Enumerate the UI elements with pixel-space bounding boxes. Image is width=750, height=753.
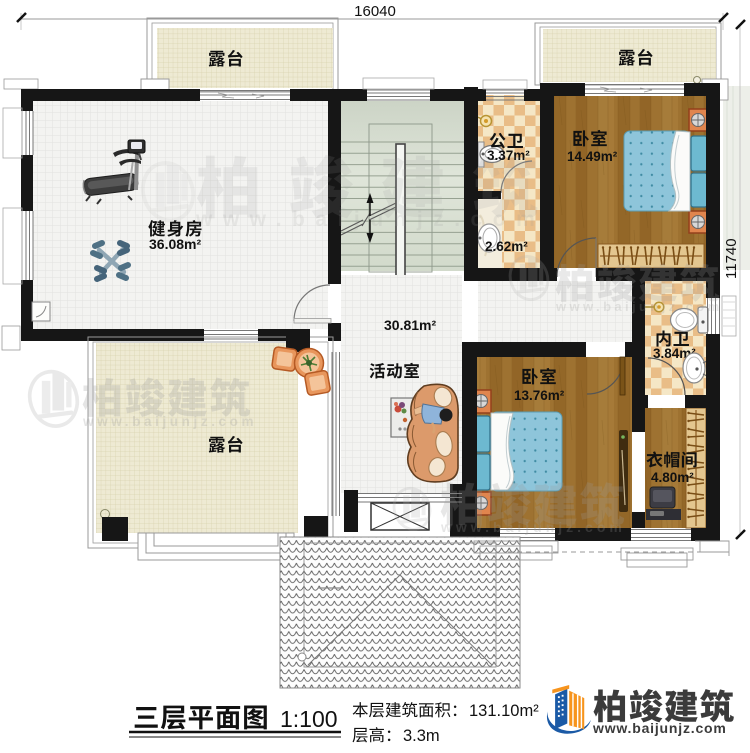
svg-text:36.08m²: 36.08m² xyxy=(149,236,201,252)
svg-text:16040: 16040 xyxy=(354,3,396,20)
svg-text:4.80m²: 4.80m² xyxy=(651,470,694,485)
svg-text:www.baijunjz.com: www.baijunjz.com xyxy=(440,519,626,535)
svg-text:3.37m²: 3.37m² xyxy=(487,148,530,163)
svg-text:131.10m²: 131.10m² xyxy=(469,702,539,720)
svg-text:www.baijunjz.com: www.baijunjz.com xyxy=(555,299,723,314)
svg-text:www.baijunjz.com: www.baijunjz.com xyxy=(82,414,257,429)
svg-text:11740: 11740 xyxy=(723,238,740,279)
svg-text:14.49m²: 14.49m² xyxy=(567,149,618,164)
svg-text:2.62m²: 2.62m² xyxy=(485,239,528,254)
svg-text:www.baijunjz.com: www.baijunjz.com xyxy=(195,208,545,231)
svg-text:1:100: 1:100 xyxy=(280,706,338,732)
svg-text:www.baijunjz.com: www.baijunjz.com xyxy=(592,720,727,736)
svg-text:30.81m²: 30.81m² xyxy=(384,317,436,333)
svg-text:3.3m: 3.3m xyxy=(403,727,440,745)
svg-text:13.76m²: 13.76m² xyxy=(514,388,565,403)
